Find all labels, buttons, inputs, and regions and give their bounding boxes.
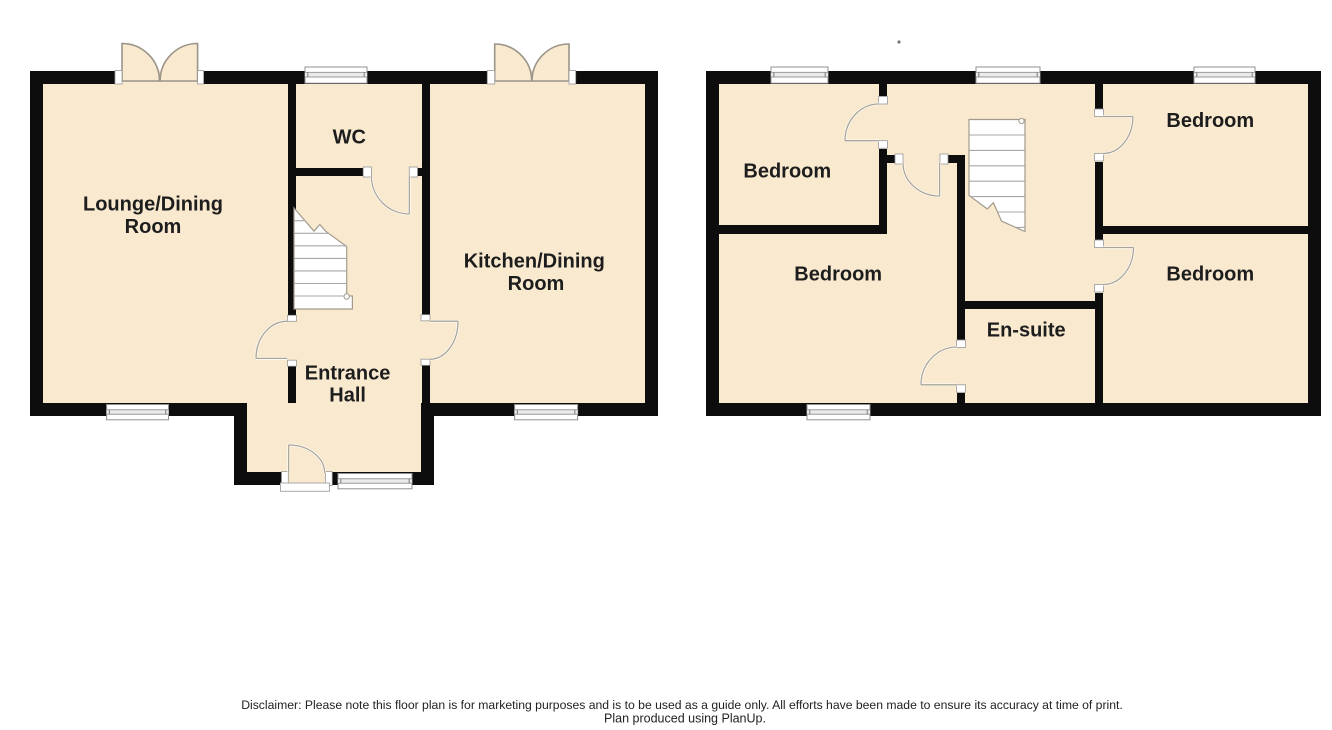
svg-text:Bedroom: Bedroom bbox=[1166, 110, 1254, 132]
svg-text:Hall: Hall bbox=[329, 385, 366, 407]
svg-text:Room: Room bbox=[125, 216, 182, 238]
svg-text:Lounge/Dining: Lounge/Dining bbox=[83, 194, 223, 216]
svg-text:Kitchen/Dining: Kitchen/Dining bbox=[464, 251, 605, 273]
svg-text:Entrance: Entrance bbox=[305, 363, 391, 385]
svg-text:Bedroom: Bedroom bbox=[743, 161, 831, 183]
svg-text:WC: WC bbox=[333, 127, 366, 149]
svg-text:Bedroom: Bedroom bbox=[794, 264, 882, 286]
svg-text:Disclaimer: Please note this f: Disclaimer: Please note this floor plan … bbox=[241, 698, 1123, 712]
svg-text:Plan produced using PlanUp.: Plan produced using PlanUp. bbox=[604, 712, 766, 726]
svg-text:Room: Room bbox=[508, 273, 565, 295]
svg-text:En-suite: En-suite bbox=[987, 320, 1066, 342]
svg-text:Bedroom: Bedroom bbox=[1166, 264, 1254, 286]
